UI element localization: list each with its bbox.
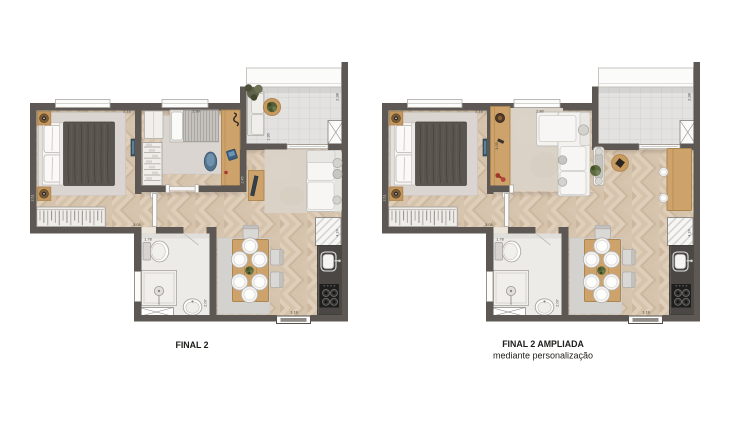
svg-text:FINAL 2: FINAL 2: [175, 340, 208, 350]
svg-text:1.30: 1.30: [267, 133, 271, 140]
svg-text:2.38: 2.38: [335, 93, 339, 100]
svg-text:mediante personalização: mediante personalização: [493, 351, 593, 361]
svg-text:3.18: 3.18: [290, 310, 297, 314]
svg-text:3.05: 3.05: [485, 223, 492, 227]
svg-text:1.78: 1.78: [144, 237, 151, 241]
svg-text:3.05: 3.05: [495, 142, 499, 149]
svg-text:FINAL 2 AMPLIADA: FINAL 2 AMPLIADA: [502, 339, 584, 349]
svg-text:2.18: 2.18: [475, 109, 482, 113]
svg-text:2.90: 2.90: [192, 109, 199, 113]
svg-text:2.61: 2.61: [31, 195, 35, 202]
svg-text:4.24: 4.24: [687, 229, 691, 236]
svg-text:2.18: 2.18: [123, 109, 130, 113]
svg-text:2.07: 2.07: [555, 299, 559, 306]
svg-text:1.78: 1.78: [496, 237, 503, 241]
svg-text:2.45: 2.45: [241, 177, 245, 184]
svg-text:3.18: 3.18: [642, 310, 649, 314]
svg-text:4.24: 4.24: [335, 229, 339, 236]
svg-text:2.61: 2.61: [383, 195, 387, 202]
svg-text:2.80: 2.80: [536, 109, 543, 113]
svg-text:3.05: 3.05: [133, 223, 140, 227]
svg-text:2.38: 2.38: [687, 93, 691, 100]
svg-text:2.07: 2.07: [203, 299, 207, 306]
